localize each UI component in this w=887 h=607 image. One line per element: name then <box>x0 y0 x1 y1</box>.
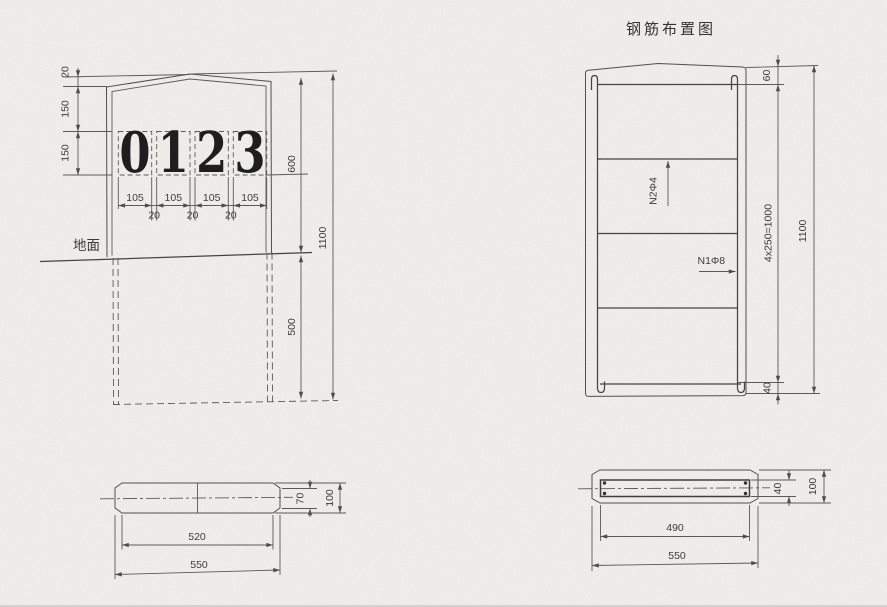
dim-gap1: 20 <box>148 210 160 222</box>
dim-cap-to-digits: 150 <box>60 100 72 118</box>
dim-digit-w1: 105 <box>126 192 144 204</box>
dim-section-height: 100 <box>324 489 336 507</box>
distribution-bar-label: N2Φ4 <box>648 177 660 205</box>
dim-digit-w3: 105 <box>203 192 221 204</box>
dim-bottom-cover: 40 <box>762 382 774 394</box>
dim-digit-w2: 105 <box>165 192 183 204</box>
dim-cage-height: 40 <box>772 483 784 495</box>
dim-digit-w4: 105 <box>241 192 259 204</box>
dim-digit-height: 150 <box>60 144 72 162</box>
dim-cap: 20 <box>60 66 72 78</box>
drawing-title: 钢筋布置图 <box>626 21 716 38</box>
dim-face-height: 70 <box>295 493 307 505</box>
dim-below-ground: 500 <box>286 318 298 336</box>
dim-total-height: 1100 <box>317 227 329 250</box>
main-bar-label: N1Φ8 <box>698 255 726 267</box>
digit-1: 1 <box>158 119 189 185</box>
dim-outer-width: 550 <box>190 559 208 571</box>
dim-rebar-total: 1100 <box>797 220 809 243</box>
scanned-drawing-sheet: 钢筋布置图 地面 0 1 2 3 <box>0 0 887 607</box>
dim-bar-spacing: 4x250=1000 <box>763 204 775 262</box>
scan-noise-texture <box>0 0 887 607</box>
dim-inner-width: 520 <box>188 531 206 543</box>
digit-3: 3 <box>234 119 265 185</box>
digit-2: 2 <box>196 119 227 185</box>
dim-rebar-section-height: 100 <box>807 478 819 496</box>
dim-above-ground: 600 <box>286 155 298 173</box>
dim-gap2: 20 <box>187 210 199 222</box>
dim-rebar-section-width: 550 <box>668 550 686 562</box>
ground-label: 地面 <box>73 238 100 253</box>
dim-cage-width: 490 <box>666 522 684 534</box>
dim-gap3: 20 <box>225 210 237 222</box>
dim-top-cover: 60 <box>761 70 773 82</box>
drawing-canvas: 钢筋布置图 地面 0 1 2 3 <box>0 0 887 607</box>
digit-0: 0 <box>119 119 150 185</box>
